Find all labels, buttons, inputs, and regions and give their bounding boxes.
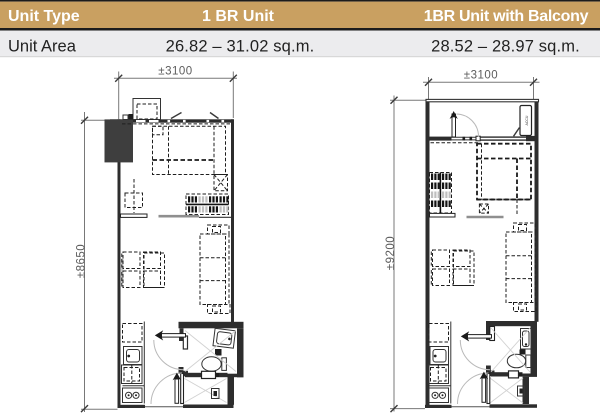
svg-text:Unit Type: Unit Type: [8, 8, 80, 25]
svg-text:±8650: ±8650: [76, 244, 88, 278]
svg-text:28.52 – 28.97 sq.m.: 28.52 – 28.97 sq.m.: [431, 37, 580, 55]
svg-text:Unit Area: Unit Area: [8, 37, 77, 55]
svg-text:26.82 – 31.02 sq.m.: 26.82 – 31.02 sq.m.: [166, 37, 315, 55]
svg-text:±3100: ±3100: [158, 66, 192, 78]
svg-text:ACCU: ACCU: [525, 115, 529, 125]
svg-text:1 BR Unit: 1 BR Unit: [202, 8, 275, 25]
svg-text:±9200: ±9200: [385, 236, 397, 270]
svg-text:1BR Unit with Balcony: 1BR Unit with Balcony: [424, 8, 589, 25]
svg-text:±3100: ±3100: [464, 70, 498, 82]
